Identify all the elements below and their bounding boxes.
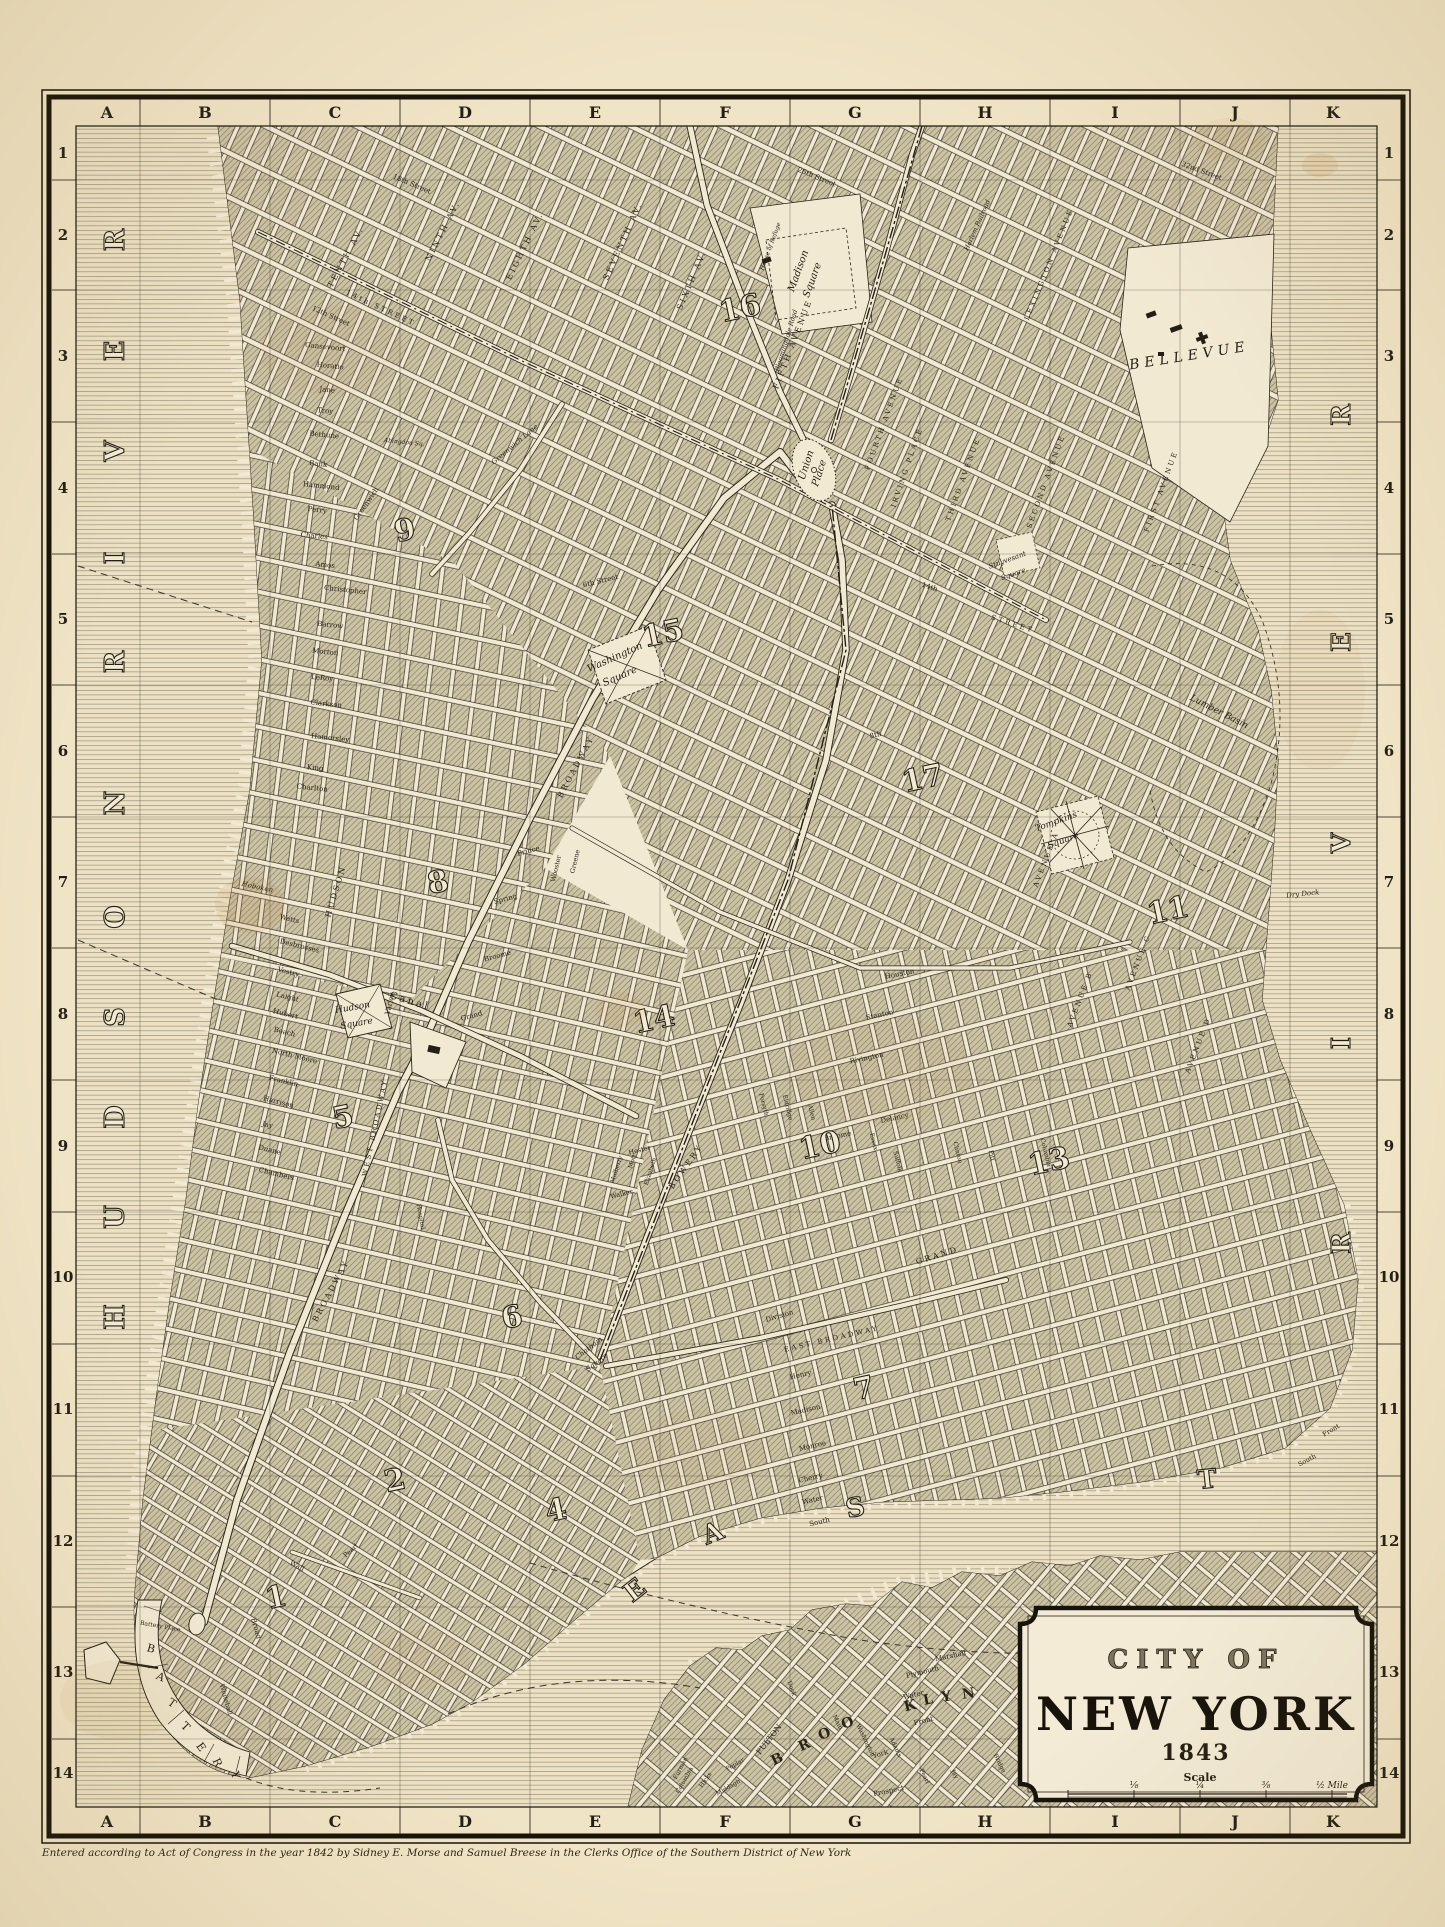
grid-letter-top: I	[1111, 103, 1118, 122]
grid-number-left: 10	[53, 1268, 74, 1286]
grid-number-right: 3	[1384, 347, 1394, 365]
water-letter: R	[100, 228, 131, 251]
water-letter: N	[100, 791, 131, 816]
grid-letter-top: D	[458, 103, 472, 122]
grid-number-left: 3	[58, 347, 68, 365]
grid-letter-bottom: D	[458, 1812, 472, 1831]
grid-number-right: 12	[1379, 1532, 1400, 1550]
grid-letter-bottom: B	[198, 1812, 212, 1831]
grid-letter-bottom: E	[589, 1812, 601, 1831]
grid-number-right: 9	[1384, 1137, 1394, 1155]
water-letter: R	[1327, 1232, 1357, 1254]
water-letter: V	[100, 439, 131, 462]
water-letter: N	[961, 1685, 976, 1703]
grid-letter-top: F	[719, 103, 731, 122]
grid-number-right: 11	[1379, 1400, 1400, 1418]
grid-number-right: 5	[1384, 610, 1394, 628]
grid-number-right: 2	[1384, 226, 1394, 244]
water-letter: O	[100, 905, 131, 929]
grid-letter-top: E	[589, 103, 601, 122]
grid-letter-top: A	[100, 103, 114, 122]
grid-letter-bottom: G	[848, 1812, 862, 1831]
water-letter: V	[1327, 832, 1357, 854]
grid-number-left: 6	[58, 742, 68, 760]
grid-letter-top: B	[198, 103, 212, 122]
grid-number-left: 1	[58, 144, 68, 162]
grid-letter-bottom: H	[977, 1812, 992, 1831]
grid-number-left: 8	[58, 1005, 68, 1023]
grid-number-left: 4	[58, 479, 68, 497]
grid-number-right: 1	[1384, 144, 1394, 162]
grid-letter-bottom: F	[719, 1812, 731, 1831]
grid-letter-top: C	[329, 103, 342, 122]
grid-number-right: 14	[1379, 1764, 1400, 1782]
scale-tick: ⅜	[1262, 1781, 1271, 1791]
grid-number-left: 2	[58, 226, 68, 244]
grid-number-right: 6	[1384, 742, 1394, 760]
grid-letter-bottom: I	[1111, 1812, 1118, 1831]
grid-number-left: 9	[58, 1137, 68, 1155]
water-letter: T	[1196, 1464, 1219, 1496]
water-letter: D	[100, 1105, 131, 1128]
scale-tick: ½ Mile	[1316, 1780, 1348, 1791]
grid-letter-bottom: J	[1229, 1812, 1239, 1831]
grid-number-right: 7	[1384, 873, 1394, 891]
water-letter: R	[1327, 404, 1357, 426]
map-canvas: TENTH AV.NINTH AV.EIGHTH AV.SEVENTH AV.S…	[0, 0, 1445, 1927]
water-letter: H	[100, 1304, 131, 1330]
grid-letter-top: K	[1326, 103, 1341, 122]
map-area: TENTH AV.NINTH AV.EIGHTH AV.SEVENTH AV.S…	[76, 126, 1380, 1810]
grid-letter-bottom: A	[100, 1812, 114, 1831]
grid-number-left: 12	[53, 1532, 74, 1550]
cartouche-year: 1843	[1161, 1740, 1230, 1766]
cartouche-title-line1: CITY OF	[1108, 1645, 1285, 1675]
title-cartouche: CITY OF NEW YORK 1843 Scale ⅛¼⅜½ Mile	[1020, 1608, 1372, 1800]
grid-letter-top: H	[977, 103, 992, 122]
grid-number-left: 11	[53, 1400, 74, 1418]
grid-number-right: 10	[1379, 1268, 1400, 1286]
water-letter: R	[100, 650, 131, 673]
water-letter: I	[100, 552, 131, 565]
grid-number-right: 13	[1379, 1663, 1400, 1681]
grid-number-left: 7	[58, 873, 68, 891]
grid-letter-bottom: C	[329, 1812, 342, 1831]
grid-number-left: 5	[58, 610, 68, 628]
water-letter: I	[1327, 1037, 1357, 1049]
water-letter: E	[100, 341, 131, 362]
grid-number-right: 4	[1384, 479, 1394, 497]
water-letter: U	[100, 1205, 131, 1229]
cartouche-title-line2: NEW YORK	[1036, 1687, 1356, 1741]
water-letter: S	[100, 1007, 131, 1027]
copyright-line: Entered according to Act of Congress in …	[41, 1847, 851, 1859]
grid-letter-top: G	[848, 103, 862, 122]
scale-tick: ⅛	[1130, 1781, 1139, 1791]
grid-number-left: 14	[53, 1764, 74, 1782]
map-label: Troy	[317, 406, 334, 416]
map-page: TENTH AV.NINTH AV.EIGHTH AV.SEVENTH AV.S…	[0, 0, 1445, 1927]
grid-number-right: 8	[1384, 1005, 1394, 1023]
grid-letter-bottom: K	[1326, 1812, 1341, 1831]
scale-tick: ¼	[1196, 1780, 1205, 1791]
